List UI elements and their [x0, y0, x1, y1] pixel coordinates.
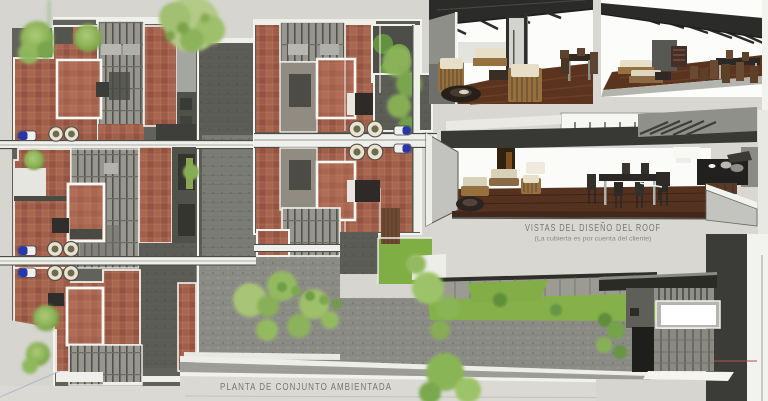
svg-text:VISTAS DEL DISEÑO DEL ROOF: VISTAS DEL DISEÑO DEL ROOF: [525, 221, 661, 234]
svg-text:(La cubierta es por cuenta del: (La cubierta es por cuenta del cliente): [535, 236, 652, 243]
svg-text:PLANTA DE CONJUNTO AMBIENTADA: PLANTA DE CONJUNTO AMBIENTADA: [220, 381, 392, 393]
